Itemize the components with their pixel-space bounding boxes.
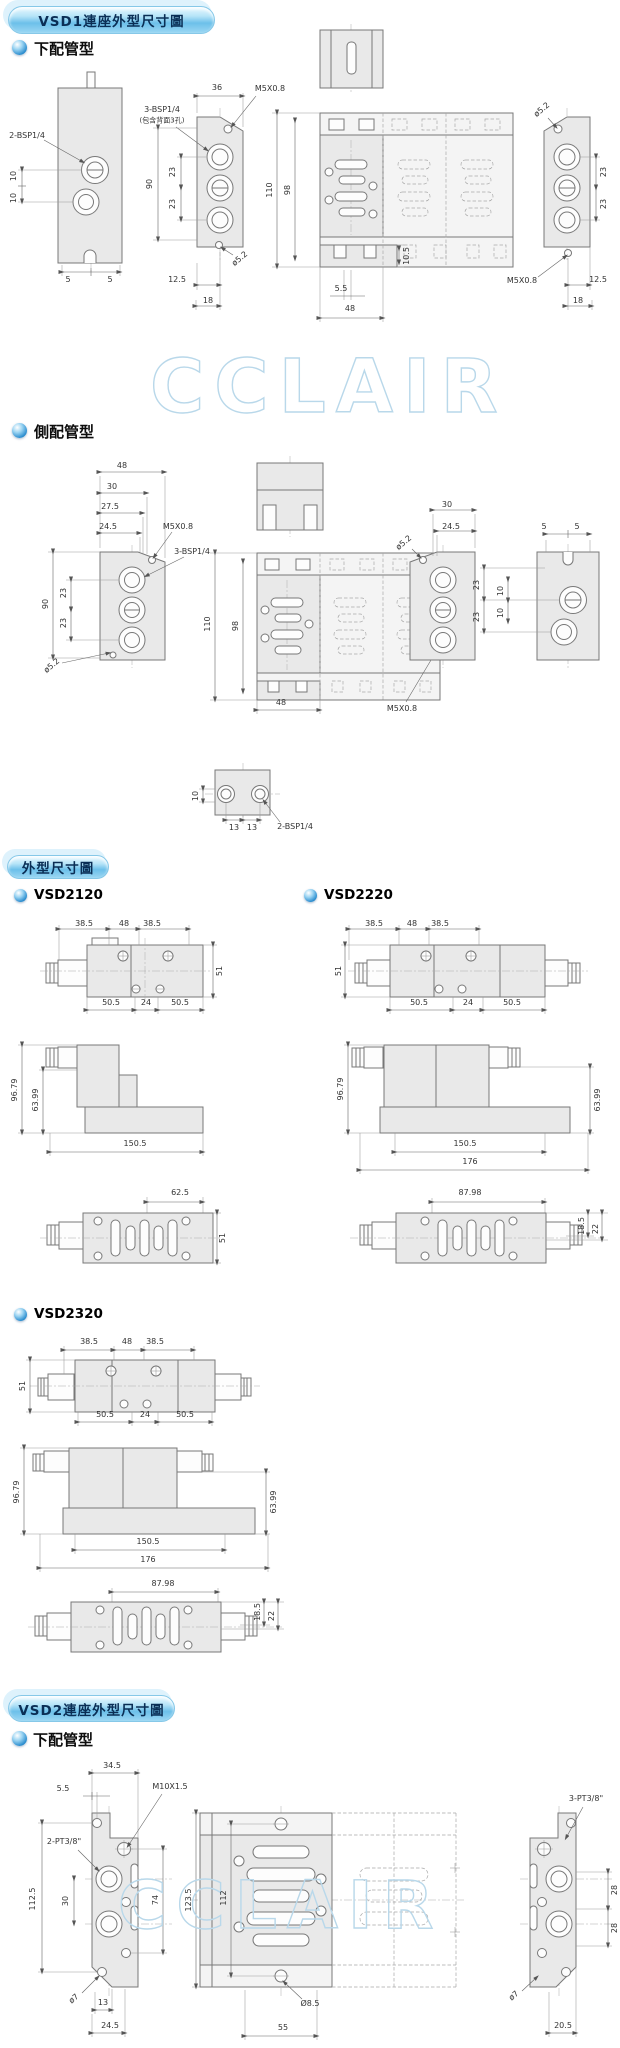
- vsd2-manifold-right-plate: [520, 1806, 612, 2037]
- dim: 18.5: [578, 1217, 586, 1235]
- dim: 63.99: [270, 1491, 278, 1514]
- dim: 23: [60, 588, 68, 598]
- dim-thread: M5X0.8: [255, 85, 285, 93]
- dim: 96.79: [337, 1078, 345, 1101]
- dim: 5: [107, 276, 112, 284]
- dim: 110: [266, 182, 274, 197]
- dim-thread: M5X0.8: [507, 277, 537, 285]
- dim: 5.5: [57, 1785, 70, 1793]
- dim: 12.5: [168, 276, 186, 284]
- dim: 10: [497, 608, 505, 618]
- dim: 112.5: [29, 1888, 37, 1911]
- dim: 50.5: [102, 999, 120, 1007]
- vsd1-bottom-front-view: [272, 113, 513, 322]
- vsd2320-bottom-view: [28, 1588, 284, 1652]
- dim: 23: [600, 167, 608, 177]
- vsd2120-bottom-view: [40, 1197, 222, 1263]
- section-outline-dims-title: 外型尺寸圖: [7, 855, 109, 879]
- vsd1-side-front-view: [210, 553, 440, 714]
- dim: 48: [122, 1338, 132, 1346]
- dim: 10: [10, 193, 18, 203]
- dim: 51: [216, 966, 224, 976]
- dim: 50.5: [176, 1411, 194, 1419]
- dim: 112: [220, 1890, 228, 1905]
- dim: 34.5: [103, 1762, 121, 1770]
- dim: 90: [42, 599, 50, 609]
- dim: 5.5: [335, 285, 348, 293]
- dim-hole: Ø8.5: [300, 2000, 319, 2008]
- dim: 176: [462, 1158, 477, 1166]
- dim: 50.5: [503, 999, 521, 1007]
- dim: 24: [141, 999, 151, 1007]
- dim: 98: [232, 621, 240, 631]
- bullet-icon: [12, 1731, 27, 1746]
- dim: 38.5: [80, 1338, 98, 1346]
- subsection-side-piping: 側配管型: [34, 421, 94, 442]
- dim: 110: [204, 616, 212, 631]
- watermark-top: CCLAIR: [150, 344, 508, 430]
- bullet-icon: [12, 40, 27, 55]
- dim: 12.5: [589, 276, 607, 284]
- dim: 23: [473, 580, 481, 590]
- dim: 13: [229, 824, 239, 832]
- dim: 30: [107, 483, 117, 491]
- dim-port-note: (包含背面3孔): [140, 118, 185, 125]
- dim: 87.98: [459, 1189, 482, 1197]
- dim: 28: [611, 1923, 619, 1933]
- dim: 51: [19, 1381, 27, 1391]
- vsd1-side-top-view: [257, 456, 323, 537]
- dim: 5: [65, 276, 70, 284]
- dim: 23: [473, 612, 481, 622]
- dim: 20.5: [554, 2022, 572, 2030]
- dim-thread: M10X1.5: [152, 1783, 187, 1791]
- dim: 123.5: [185, 1889, 193, 1912]
- dim: 150.5: [137, 1538, 160, 1546]
- dim: 5: [541, 523, 546, 531]
- vsd1-bottom-side-view: [18, 72, 122, 276]
- bullet-icon: [14, 1308, 27, 1321]
- model-label-vsd2220: VSD2220: [324, 887, 393, 903]
- dim: 74: [152, 1895, 160, 1905]
- dim: 10.5: [403, 247, 411, 265]
- dim: 55: [278, 2024, 288, 2032]
- dim: 48: [345, 305, 355, 313]
- dim: 48: [119, 920, 129, 928]
- section-title-text: 外型尺寸圖: [22, 857, 95, 877]
- dim: 48: [407, 920, 417, 928]
- watermark-bottom: CCLAIR: [118, 1867, 443, 1944]
- dim: 13: [98, 1999, 108, 2007]
- catalog-page: CCLAIR CCLAIR VSD1連座外型尺寸圖 下配管型 側配管型 外型尺寸…: [0, 0, 620, 2048]
- model-label-vsd2320: VSD2320: [34, 1306, 103, 1322]
- dim: 24.5: [442, 523, 460, 531]
- vsd1-side-bottom-view: [199, 763, 280, 824]
- dim-port: 3-BSP1/4: [144, 106, 180, 114]
- dim: 22: [592, 1224, 600, 1234]
- section-vsd1-manifold-title: VSD1連座外型尺寸圖: [8, 6, 215, 34]
- subsection-bottom-piping: 下配管型: [34, 38, 94, 59]
- vsd2220-bottom-view: [350, 1198, 608, 1263]
- dim: 10: [10, 171, 18, 181]
- dim: 38.5: [143, 920, 161, 928]
- dim: 30: [442, 501, 452, 509]
- dim: 50.5: [171, 999, 189, 1007]
- dim: 38.5: [146, 1338, 164, 1346]
- dim: 96.79: [11, 1079, 19, 1102]
- model-label-vsd2120: VSD2120: [34, 887, 103, 903]
- dim: 18.5: [254, 1603, 262, 1621]
- bullet-icon: [304, 889, 317, 902]
- dim: 24: [140, 1411, 150, 1419]
- dim: 13: [247, 824, 257, 832]
- dim: 38.5: [75, 920, 93, 928]
- subsection-bottom-piping-2: 下配管型: [33, 1729, 93, 1750]
- vsd1-bottom-top-view: [320, 24, 383, 94]
- dim: 63.99: [32, 1089, 40, 1112]
- dim: 30: [62, 1896, 70, 1906]
- dim: 51: [335, 966, 343, 976]
- dim: 23: [60, 618, 68, 628]
- dim: 18: [203, 297, 213, 305]
- dim: 90: [146, 179, 154, 189]
- dim: 38.5: [431, 920, 449, 928]
- dim: 28: [611, 1885, 619, 1895]
- section-title-text: VSD1連座外型尺寸圖: [38, 10, 184, 30]
- dim: 22: [268, 1611, 276, 1621]
- dim: 27.5: [101, 503, 119, 511]
- dim: 23: [600, 199, 608, 209]
- dim: 150.5: [454, 1140, 477, 1148]
- dim: 51: [219, 1233, 227, 1243]
- dim: 18: [573, 297, 583, 305]
- vsd2120-top-view: [40, 925, 217, 1014]
- dim: 10: [497, 586, 505, 596]
- dim-port: 2-BSP1/4: [9, 132, 45, 140]
- dim: 96.79: [13, 1481, 21, 1504]
- dim: 24.5: [101, 2022, 119, 2030]
- vsd1-side-side-view-right: [480, 530, 599, 668]
- dim-port: 3-PT3/8": [569, 1795, 603, 1803]
- dim-thread: M5X0.8: [387, 705, 417, 713]
- vsd2120-side-view: [18, 1045, 203, 1156]
- dim-port: 2-PT3/8": [47, 1838, 81, 1846]
- section-title-text: VSD2連座外型尺寸圖: [18, 1699, 164, 1719]
- dim: 62.5: [171, 1189, 189, 1197]
- vsd2220-side-view: [344, 1045, 594, 1174]
- dim: 23: [169, 199, 177, 209]
- dim: 24.5: [99, 523, 117, 531]
- dim-thread: M5X0.8: [163, 523, 193, 531]
- dim-port: 3-BSP1/4: [174, 548, 210, 556]
- bullet-icon: [14, 889, 27, 902]
- dim: 5: [574, 523, 579, 531]
- dim: 98: [284, 185, 292, 195]
- dim: 63.99: [594, 1089, 602, 1112]
- dim: 48: [117, 462, 127, 470]
- dim: 50.5: [96, 1411, 114, 1419]
- dim-port: 2-BSP1/4: [277, 823, 313, 831]
- section-vsd2-manifold-title: VSD2連座外型尺寸圖: [8, 1695, 175, 1722]
- vsd2320-side-view: [20, 1448, 270, 1572]
- dim: 50.5: [410, 999, 428, 1007]
- dim: 48: [276, 699, 286, 707]
- vsd1-side-end-view-right: [410, 510, 475, 668]
- dim: 24: [463, 999, 473, 1007]
- dim: 87.98: [152, 1580, 175, 1588]
- dim: 176: [140, 1556, 155, 1564]
- dim: 150.5: [124, 1140, 147, 1148]
- dim: 36: [212, 84, 222, 92]
- dim: 23: [169, 167, 177, 177]
- dim: 10: [192, 791, 200, 801]
- bullet-icon: [12, 423, 27, 438]
- dim: 38.5: [365, 920, 383, 928]
